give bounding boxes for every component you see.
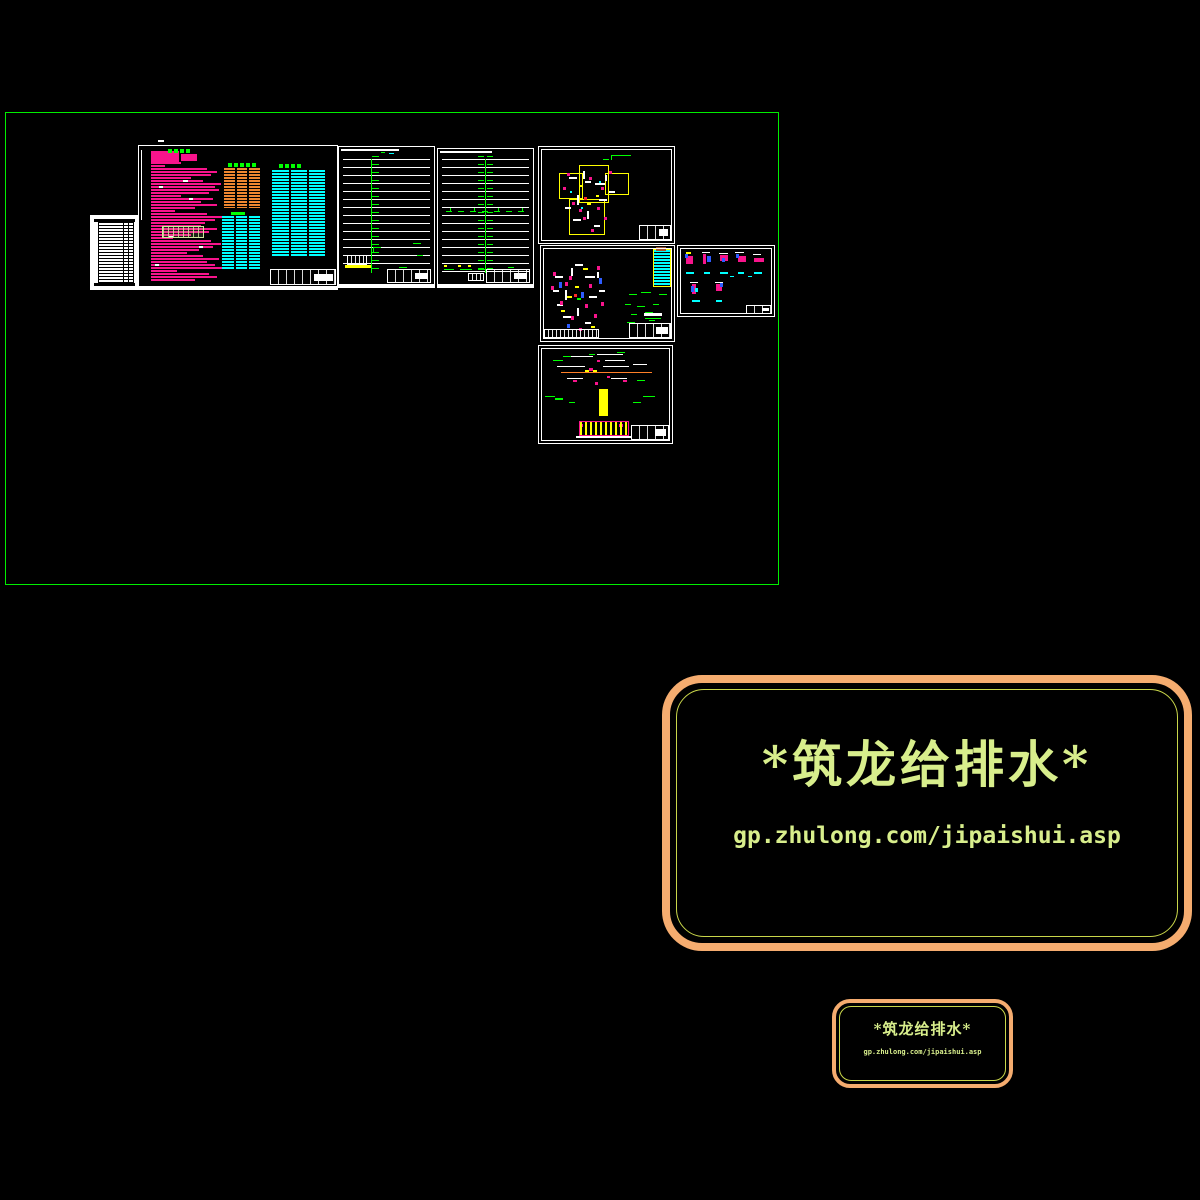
cad-mark: [599, 199, 607, 201]
cad-mark: [563, 187, 566, 190]
tank-base-line: [576, 436, 632, 438]
cad-mark: [373, 247, 381, 248]
cad-mark: [753, 254, 761, 255]
stray-tick-mark: [158, 140, 164, 142]
cad-mark: [518, 211, 524, 212]
table-column-gap: [235, 168, 237, 208]
cad-mark: [583, 171, 585, 179]
cad-mark: [567, 324, 570, 328]
cad-mark: [595, 183, 605, 185]
cad-mark: [719, 253, 728, 254]
cad-mark: [450, 208, 451, 211]
cad-mark: [609, 171, 612, 174]
cad-mark: [597, 207, 600, 210]
cad-mark: [569, 356, 593, 357]
title-block-cell: [314, 274, 333, 281]
cad-mark: [601, 302, 604, 306]
cad-mark: [444, 269, 454, 270]
cad-mark: [605, 175, 607, 181]
cad-mark: [722, 258, 725, 262]
cad-mark: [603, 159, 609, 160]
cad-mark: [555, 398, 563, 400]
cad-mark: [584, 197, 587, 200]
cad-mark: [231, 212, 245, 215]
cad-mark: [595, 382, 598, 385]
cad-mark: [567, 378, 583, 379]
cad-mark: [603, 366, 629, 367]
title-block: [639, 225, 671, 240]
cad-mark: [470, 211, 476, 212]
cad-mark: [557, 366, 585, 367]
cad-mark: [599, 290, 605, 292]
cad-mark: [587, 211, 589, 219]
cad-mark: [695, 288, 698, 292]
cad-mark: [460, 269, 472, 270]
cad-mark: [563, 316, 571, 318]
title-block-cell: [762, 308, 769, 312]
cad-mark: [599, 181, 601, 183]
schedule-header-cap: [656, 247, 666, 251]
cad-mark: [570, 191, 572, 193]
pipe-schedule-table: [653, 249, 671, 287]
cad-mark: [643, 396, 655, 397]
cad-mark: [748, 276, 752, 277]
cad-mark: [581, 207, 583, 209]
cad-mark: [458, 211, 464, 212]
title-block-cell: [659, 229, 668, 236]
cad-mark: [555, 276, 563, 278]
cad-mark: [181, 154, 197, 161]
cad-mark: [583, 217, 586, 220]
cad-mark: [381, 152, 385, 153]
cad-mark: [641, 292, 651, 293]
cad-mark: [571, 268, 573, 276]
cad-mark: [738, 256, 746, 262]
cad-mark: [569, 177, 577, 179]
cad-mark: [609, 191, 615, 193]
cad-mark: [617, 352, 625, 353]
sheet-installation-details[interactable]: [677, 245, 775, 317]
cad-mark: [707, 256, 711, 262]
table-column-line: [128, 219, 129, 286]
cad-model-space[interactable]: *筑龙给排水* gp.zhulong.com/jipaishui.asp *筑龙…: [0, 0, 1200, 1200]
cad-mark: [596, 195, 599, 197]
cad-mark: [565, 290, 567, 300]
sheet-design-notes[interactable]: [138, 145, 338, 290]
cad-mark: [575, 286, 579, 288]
cad-mark: [551, 286, 554, 290]
sheet-riser-diagram-2[interactable]: [437, 148, 534, 288]
cad-mark: [446, 211, 452, 212]
sheet-bottom-bar: [438, 284, 533, 287]
cad-mark: [585, 276, 595, 278]
riser-annotations: [339, 147, 434, 287]
material-table-cyan-large: [272, 170, 325, 256]
title-block: [746, 305, 772, 314]
table-column-line: [133, 219, 134, 286]
cad-mark: [579, 185, 582, 187]
watermark-brand-text: *筑龙给排水*: [762, 735, 1092, 795]
title-block-cell: [655, 429, 666, 436]
title-block: [387, 269, 431, 283]
cad-mark: [458, 265, 461, 267]
cad-mark: [716, 300, 722, 302]
cad-mark: [577, 308, 579, 316]
table-column-gap: [307, 170, 309, 256]
cad-mark: [545, 396, 555, 397]
watermark-url-text: gp.zhulong.com/jipaishui.asp: [733, 821, 1121, 851]
cad-mark: [715, 282, 723, 283]
cad-mark: [565, 207, 571, 209]
cad-mark: [637, 306, 645, 307]
cad-mark: [589, 296, 597, 298]
cad-mark: [597, 354, 623, 355]
material-table-cyan-small: [222, 216, 260, 269]
cad-mark: [594, 314, 597, 318]
orange-pipe-line: [561, 372, 652, 373]
cad-mark: [685, 254, 688, 258]
cad-mark: [644, 313, 662, 316]
cad-mark: [474, 208, 475, 211]
table-column-gap: [234, 216, 236, 269]
cad-mark: [607, 376, 610, 378]
cad-mark: [754, 258, 764, 262]
tank-detail: [579, 421, 629, 436]
watermark-box-small: *筑龙给排水* gp.zhulong.com/jipaishui.asp: [832, 999, 1013, 1088]
legend-strip-table: [544, 329, 599, 338]
cad-mark: [573, 380, 577, 382]
cad-mark: [189, 198, 193, 200]
title-block: [631, 425, 669, 440]
cad-mark: [587, 203, 591, 205]
cad-mark: [730, 276, 734, 277]
sheet-bottom-bar: [139, 286, 337, 289]
cad-mark: [645, 318, 661, 319]
cad-mark: [498, 208, 499, 211]
cad-mark: [468, 265, 471, 267]
cad-mark: [577, 195, 579, 205]
sheet-riser-diagram-1[interactable]: [338, 146, 435, 288]
cad-mark: [611, 155, 631, 156]
yellow-shaft: [599, 389, 608, 416]
cad-mark: [553, 360, 563, 361]
cad-mark: [633, 402, 641, 403]
orange-table-title: [228, 163, 256, 167]
table-column-gap: [247, 168, 249, 208]
cad-mark: [594, 225, 600, 227]
cad-mark: [591, 326, 595, 328]
cad-mark: [417, 255, 423, 256]
cad-mark: [494, 211, 500, 212]
cad-mark: [605, 360, 625, 361]
cad-mark: [601, 187, 604, 190]
cad-mark: [444, 265, 447, 267]
cad-mark: [553, 272, 556, 276]
cad-mark: [637, 380, 645, 381]
cad-mark: [611, 378, 627, 379]
cad-mark: [692, 300, 700, 302]
cad-mark: [522, 208, 523, 211]
cad-mark: [567, 173, 570, 176]
cad-mark: [597, 360, 600, 362]
cad-mark: [168, 149, 172, 153]
cad-mark: [174, 149, 178, 153]
watermark-inner-line: [839, 1006, 1006, 1081]
cad-mark: [559, 282, 562, 288]
cad-mark: [633, 364, 647, 365]
cad-mark: [589, 177, 592, 180]
cad-mark: [599, 278, 602, 284]
cad-mark: [659, 294, 667, 295]
cad-mark: [583, 268, 588, 270]
table-column-gap: [289, 170, 291, 256]
cad-mark: [686, 252, 691, 254]
cad-mark: [623, 380, 627, 382]
cad-mark: [389, 153, 394, 154]
cad-mark: [703, 254, 706, 264]
cad-mark: [691, 286, 694, 292]
title-block: [270, 269, 336, 285]
cad-mark: [561, 310, 565, 312]
cad-mark: [573, 219, 581, 221]
cad-mark: [631, 314, 637, 315]
cad-mark: [690, 282, 698, 283]
cad-mark: [186, 149, 190, 153]
cad-mark: [183, 180, 188, 182]
cad-mark: [572, 202, 575, 205]
cad-mark: [506, 211, 512, 212]
cad-mark: [720, 272, 728, 274]
cad-mark: [581, 292, 584, 298]
cad-mark: [589, 354, 595, 355]
watermark-brand-text: *筑龙给排水*: [874, 1019, 972, 1039]
cad-mark: [553, 290, 559, 292]
table-column-line: [123, 219, 124, 286]
cad-mark: [569, 276, 572, 280]
cad-mark: [754, 272, 762, 274]
cad-mark: [399, 267, 407, 268]
riser-annotations: [438, 149, 533, 287]
highlighted-note-row: [162, 226, 204, 238]
cad-mark: [565, 282, 568, 286]
title-block-cell: [514, 273, 527, 279]
cad-mark: [567, 296, 572, 298]
cad-mark: [563, 356, 571, 357]
watermark-inner-line: [676, 689, 1178, 937]
sheet-bottom-bar: [339, 284, 434, 287]
cad-mark: [155, 264, 159, 266]
cad-mark: [579, 209, 582, 212]
cad-mark: [736, 254, 739, 258]
cad-mark: [560, 301, 563, 305]
cad-mark: [597, 266, 600, 270]
cad-mark: [702, 252, 710, 253]
title-block: [486, 269, 530, 283]
table-column-gap: [247, 216, 249, 269]
cad-mark: [585, 304, 588, 308]
cad-mark: [653, 304, 659, 305]
sheet-section-detail[interactable]: [538, 345, 673, 444]
sheet-floor-plan-2[interactable]: [540, 245, 675, 342]
title-block-cell: [656, 327, 668, 334]
cad-mark: [704, 272, 710, 274]
cad-mark: [180, 149, 184, 153]
cad-mark: [571, 316, 574, 320]
cad-mark: [199, 246, 203, 248]
sheet-floor-plan-1[interactable]: [538, 146, 675, 244]
cad-mark: [575, 264, 583, 266]
title-block-cell: [415, 273, 428, 279]
cad-mark: [738, 272, 744, 274]
cad-mark: [735, 252, 744, 253]
cad-mark: [589, 284, 592, 288]
cad-mark: [686, 272, 694, 274]
cad-mark: [373, 247, 374, 253]
cad-mark: [413, 243, 421, 244]
cad-mark: [585, 322, 591, 324]
cad-mark: [577, 298, 581, 300]
cad-mark: [159, 186, 163, 188]
sheet-drawing-list-table[interactable]: [90, 215, 139, 290]
cyan-table-title: [279, 164, 303, 168]
cad-mark: [508, 267, 514, 268]
title-block: [629, 323, 671, 338]
cad-mark: [591, 229, 594, 232]
cad-mark: [611, 155, 612, 160]
cad-mark: [569, 402, 575, 403]
watermark-url-text: gp.zhulong.com/jipaishui.asp: [863, 1047, 981, 1057]
cad-mark: [604, 217, 607, 220]
watermark-box-large: *筑龙给排水* gp.zhulong.com/jipaishui.asp: [662, 675, 1192, 951]
cad-mark: [482, 211, 488, 212]
cad-mark: [625, 304, 631, 305]
cad-mark: [649, 320, 655, 321]
cad-mark: [585, 181, 591, 183]
cad-mark: [574, 294, 577, 297]
fixture-table-orange: [224, 168, 260, 208]
cad-mark: [629, 294, 637, 295]
table-column-line: [98, 219, 99, 286]
